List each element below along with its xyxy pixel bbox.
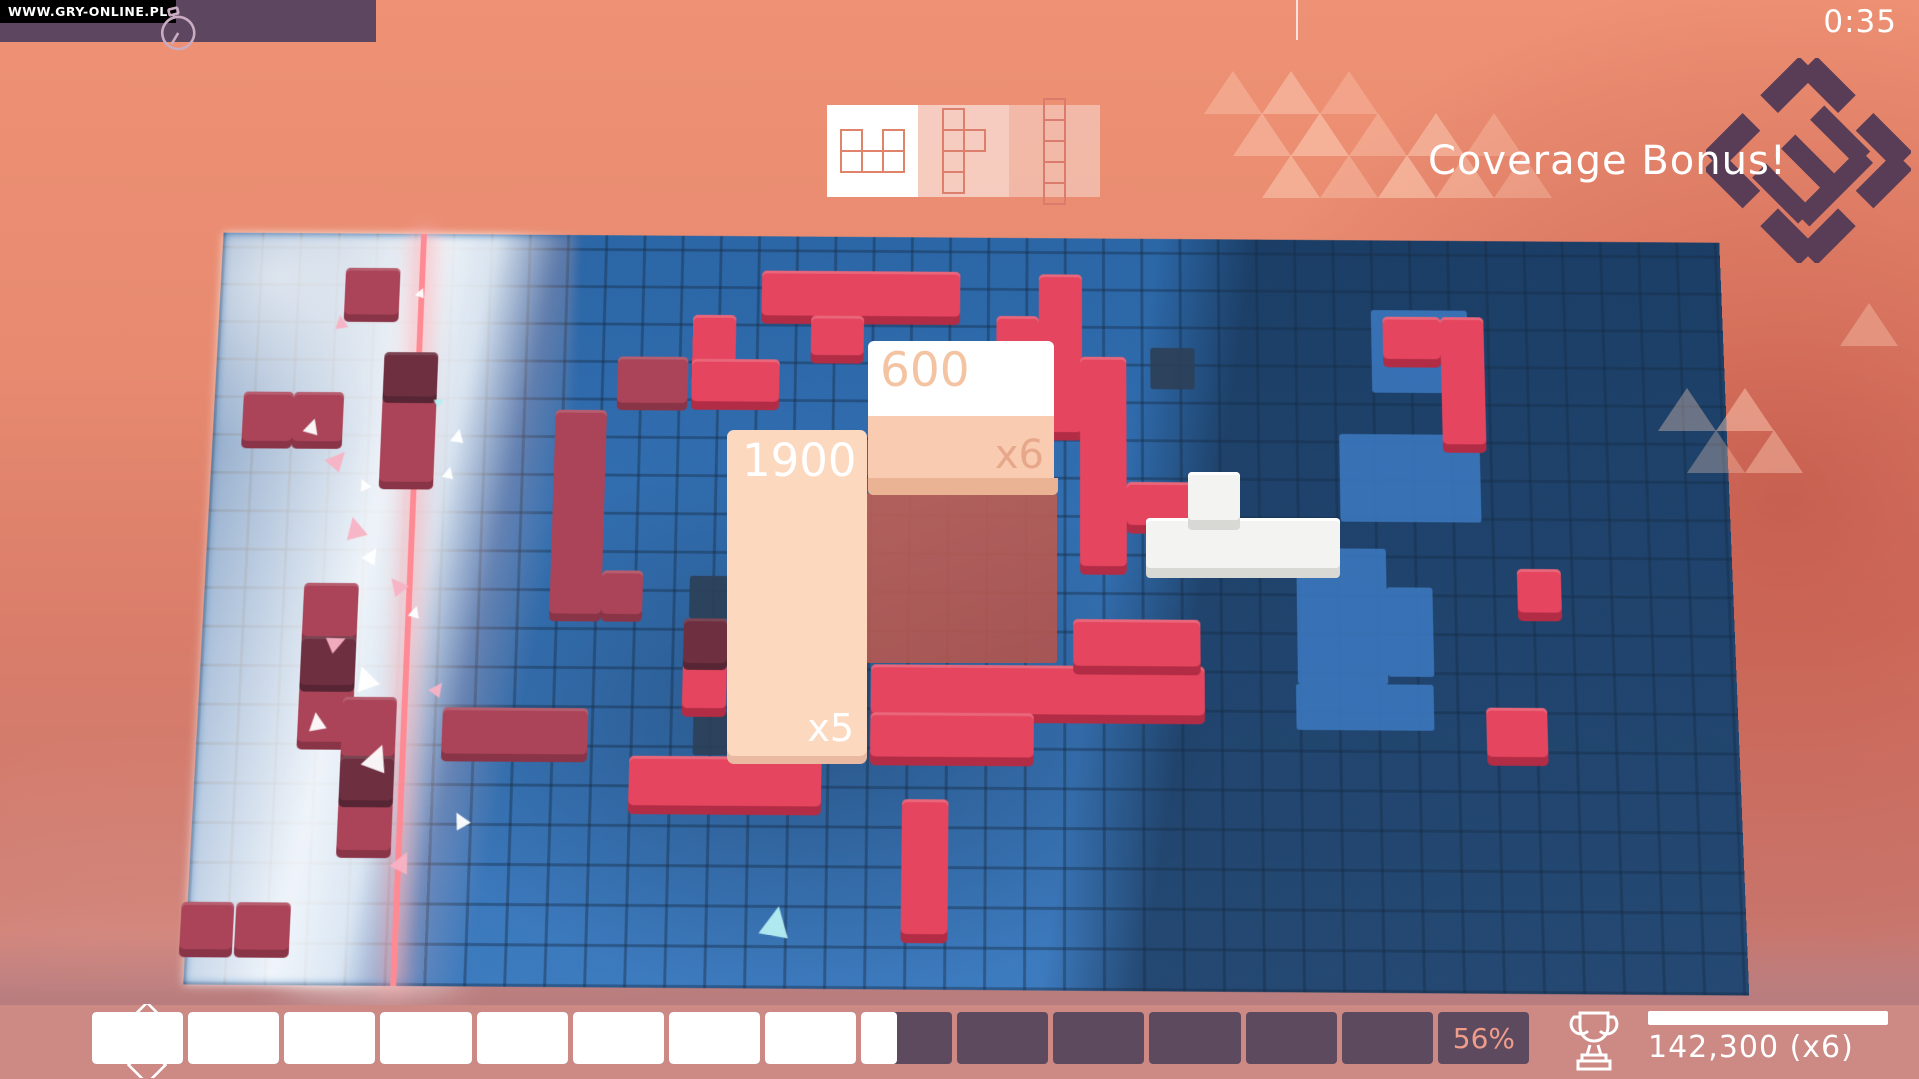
board-block-crimson: [811, 316, 864, 356]
bg-triangle: [1320, 68, 1378, 114]
progress-segment-fill: [188, 1012, 279, 1064]
bg-triangle: [1745, 427, 1803, 473]
board-block-crimson: [870, 712, 1034, 757]
progress-segment-fill: [861, 1012, 897, 1064]
big-block-ghost: [866, 493, 1057, 663]
board-block-rose: [549, 410, 607, 614]
progress-segment: [1342, 1012, 1433, 1064]
progress-segment: [284, 1012, 375, 1064]
piece-selector[interactable]: [827, 105, 1100, 197]
popup-multiplier: x5: [807, 706, 854, 750]
i-pentomino-icon: [1043, 98, 1066, 205]
popup-multiplier: x6: [995, 432, 1044, 478]
board-block-crimson: [1517, 569, 1562, 613]
progress-segment-fill: [92, 1012, 183, 1064]
white-piece-part[interactable]: [1188, 472, 1240, 520]
shadow-cell: [689, 576, 731, 619]
bg-triangle: [1262, 152, 1320, 198]
progress-segment: [861, 1012, 952, 1064]
clear-column-glow: [183, 233, 577, 987]
progress-segment: [380, 1012, 471, 1064]
bg-triangle: [1349, 110, 1407, 156]
board-block-rose: [234, 902, 291, 950]
trophy-icon: [1566, 1008, 1622, 1074]
lit-cell-patch: [1296, 684, 1434, 731]
score-popup-600: 600 x6: [868, 341, 1054, 495]
lit-cell-patch: [1296, 548, 1388, 684]
board-block-crimson: [1486, 708, 1548, 758]
progress-segment-fill: [765, 1012, 856, 1064]
progress-segment: [92, 1012, 183, 1064]
bg-triangle: [1204, 68, 1262, 114]
particle-triangle: [758, 900, 794, 938]
board-block-rose: [241, 391, 294, 441]
game-screen: WWW.GRY-ONLINE.PL 0:35 Coverage Bonus! 1…: [0, 0, 1919, 1079]
progress-segment: [1053, 1012, 1144, 1064]
board-block-crimson: [691, 359, 780, 402]
bg-triangle: [1687, 427, 1745, 473]
progress-segment-fill: [380, 1012, 471, 1064]
board-block-rose: [601, 570, 643, 614]
progress-segment: [1149, 1012, 1240, 1064]
progress-segment-fill: [477, 1012, 568, 1064]
lit-cell-patch: [1386, 587, 1434, 677]
board-block-dark: [683, 618, 728, 663]
timer-bar-divider: [1296, 0, 1298, 40]
y-pentomino-icon: [942, 108, 986, 194]
popup-card-side: [868, 478, 1058, 495]
board-block-crimson: [1080, 357, 1127, 566]
progress-segment: [188, 1012, 279, 1064]
board-block-crimson: [761, 271, 960, 317]
piece-slot-u-pentomino[interactable]: [827, 105, 918, 197]
stopwatch-icon: [150, 6, 208, 54]
board-block-crimson: [901, 799, 949, 934]
board-block-rose: [336, 800, 393, 850]
progress-segment-fill: [669, 1012, 760, 1064]
bg-triangle: [1320, 152, 1378, 198]
board-block-rose: [617, 356, 689, 403]
particle-triangle: [333, 311, 348, 329]
piece-slot-y-pentomino[interactable]: [918, 105, 1009, 197]
board-block-rose: [379, 396, 437, 482]
board-block-dark: [383, 352, 439, 397]
board-block-rose: [441, 707, 588, 754]
board-block-crimson: [871, 664, 1205, 715]
shadow-cell: [1150, 348, 1195, 390]
white-piece-part[interactable]: [1146, 518, 1340, 568]
coverage-percent: 56%: [1453, 1022, 1515, 1055]
progress-segment: [1246, 1012, 1337, 1064]
board-block-crimson: [1440, 317, 1486, 444]
bg-triangle: [1716, 385, 1774, 431]
progress-segment: [573, 1012, 664, 1064]
progress-segment: [477, 1012, 568, 1064]
bg-triangle: [1291, 110, 1349, 156]
piece-slot-i-pentomino[interactable]: [1009, 105, 1100, 197]
popup-card-band: x6: [868, 416, 1054, 478]
bg-triangle: [1262, 68, 1320, 114]
bg-triangle: [1658, 385, 1716, 431]
popup-score-value: 600: [880, 343, 970, 398]
progress-segment-fill: [284, 1012, 375, 1064]
score-popup-1900: 1900 x5: [727, 430, 867, 756]
coverage-bonus-banner: Coverage Bonus!: [1428, 138, 1787, 184]
board-block-crimson: [628, 756, 822, 807]
bg-triangle: [1233, 110, 1291, 156]
progress-segment: [765, 1012, 856, 1064]
score-meter: [1648, 1011, 1888, 1025]
board-block-crimson: [682, 663, 727, 708]
progress-segment: [957, 1012, 1048, 1064]
board-block-rose: [179, 902, 234, 950]
u-pentomino-icon: [840, 129, 905, 173]
coverage-progress-bar: 56%: [92, 1012, 1529, 1064]
board-block-crimson: [1382, 317, 1441, 360]
board-block-rose: [302, 583, 359, 637]
score-value: 142,300 (x6): [1648, 1030, 1854, 1065]
progress-segment: [669, 1012, 760, 1064]
lit-cell-patch: [1339, 434, 1481, 523]
board-block-crimson: [1073, 619, 1200, 667]
popup-score-value: 1900: [742, 434, 857, 487]
timer-value: 0:35: [1823, 4, 1897, 40]
bg-triangle: [1840, 300, 1898, 346]
particle-triangle: [306, 708, 326, 731]
shadow-cell: [693, 712, 729, 755]
board-block-rose: [344, 268, 401, 315]
progress-segment-fill: [573, 1012, 664, 1064]
